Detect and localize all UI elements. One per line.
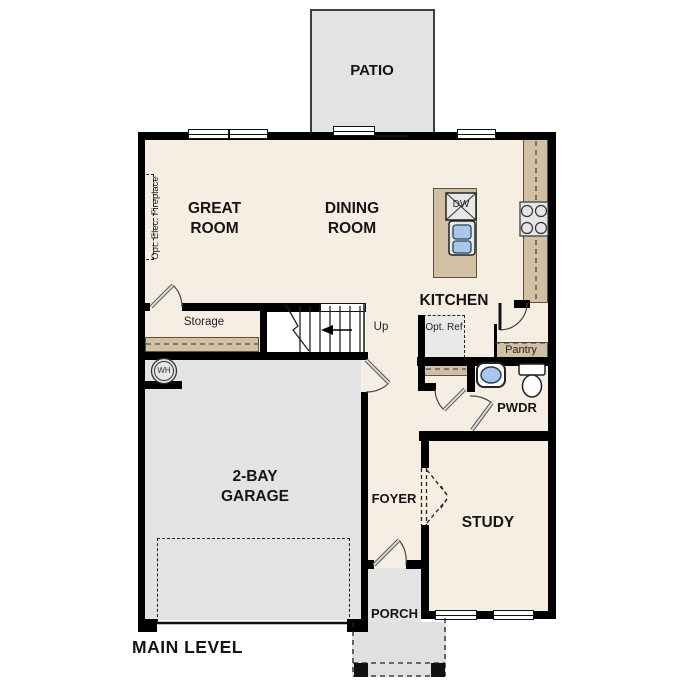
wall-pantry-stub <box>514 300 530 308</box>
study-label: STUDY <box>455 513 521 533</box>
powder-label: PWDR <box>488 399 546 416</box>
pantry-label: Pantry <box>494 344 548 356</box>
optional-fireplace-label: Opt. Elec. Fireplace <box>150 172 164 264</box>
kitchen-label: KITCHEN <box>413 291 495 311</box>
patio-sliding-door-panel <box>333 126 375 136</box>
wall-study-left-a <box>421 441 429 468</box>
garage-apron-dashed <box>157 538 350 622</box>
storage-label: Storage <box>165 316 243 328</box>
main-level-title: MAIN LEVEL <box>132 636 292 659</box>
window-great-room-2 <box>229 129 268 139</box>
wall-garage-bottom-left <box>138 619 157 632</box>
wall-closet-divider <box>467 363 475 392</box>
wall-closet-stub <box>418 383 436 391</box>
wall-storage-top-b <box>182 303 263 311</box>
storage-shelf <box>145 337 259 352</box>
stairs-up-label: Up <box>368 321 394 333</box>
wall-powder-top <box>417 357 556 366</box>
wall-storage-top-a <box>138 303 150 311</box>
wall-garage-hall <box>361 392 368 627</box>
wall-garage-top <box>138 352 368 360</box>
window-great-room-1 <box>188 129 229 139</box>
dining-room-label: DINING ROOM <box>308 199 396 240</box>
wall-powder-bottom-study-top <box>419 431 556 441</box>
window-study-1 <box>435 610 477 620</box>
kitchen-counter <box>523 139 548 303</box>
dishwasher-label: DW <box>448 199 474 210</box>
wall-front-left <box>361 560 374 569</box>
wall-left <box>138 132 145 628</box>
stair-header-strip <box>320 303 366 312</box>
foyer-label: FOYER <box>370 490 418 507</box>
window-study-2 <box>493 610 534 620</box>
optional-refrigerator-label: Opt. Ref <box>424 321 464 336</box>
wall-front-right <box>406 560 423 569</box>
garage-label: 2-BAY GARAGE <box>213 467 297 508</box>
great-room-label: GREAT ROOM <box>167 199 262 240</box>
floor-plan: PATIO GREAT ROOM DINING ROOM KITCHEN Sto… <box>0 0 687 687</box>
patio-label: PATIO <box>330 61 414 81</box>
wall-wh-nook <box>138 381 182 389</box>
wall-study-left-b <box>421 525 429 618</box>
window-kitchen <box>457 129 496 139</box>
wall-storage-stairs-divider <box>260 303 267 359</box>
water-heater-label: WH <box>152 366 176 375</box>
porch-label: PORCH <box>368 605 421 622</box>
wall-stair-header <box>263 303 320 312</box>
wall-right <box>548 132 556 619</box>
